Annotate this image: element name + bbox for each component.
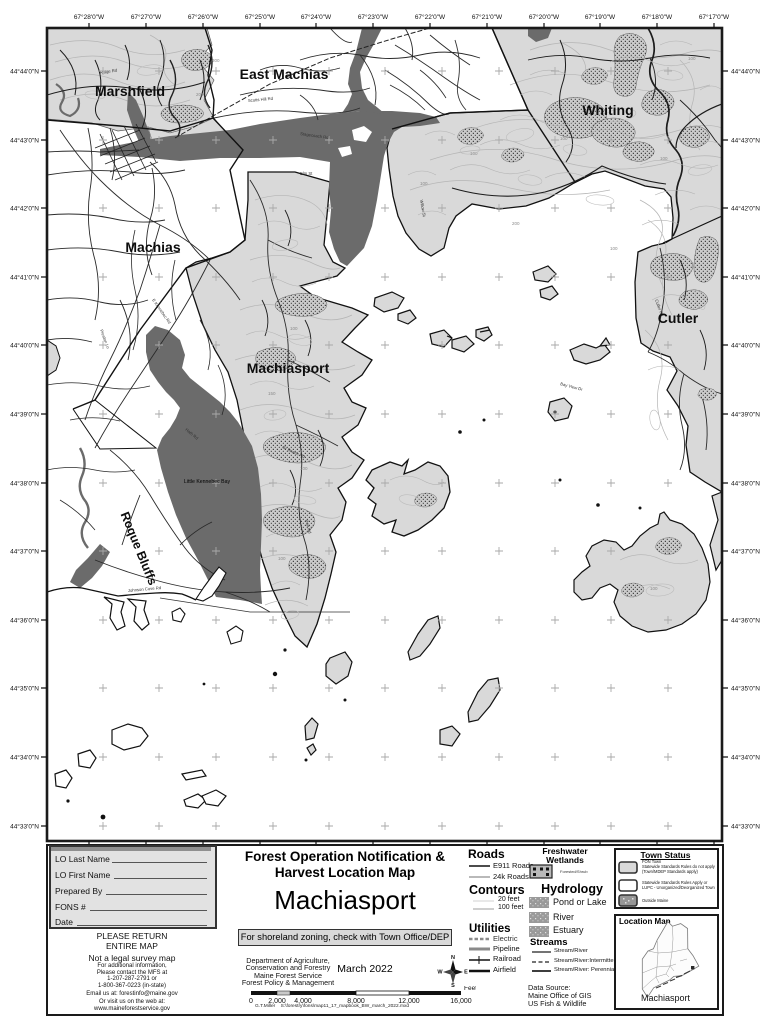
svg-text:44°39'0"N: 44°39'0"N	[731, 411, 760, 419]
svg-text:100: 100	[660, 156, 668, 161]
svg-text:44°40'0"N: 44°40'0"N	[731, 342, 760, 350]
svg-text:67°21'0"W: 67°21'0"W	[472, 13, 503, 21]
svg-text:44°37'0"N: 44°37'0"N	[10, 548, 39, 556]
svg-text:67°24'0"W: 67°24'0"W	[301, 13, 332, 21]
svg-text:Machiasport: Machiasport	[247, 360, 330, 376]
svg-text:44°39'0"N: 44°39'0"N	[10, 411, 39, 419]
svg-text:100: 100	[688, 56, 696, 61]
svg-text:44°44'0"N: 44°44'0"N	[731, 68, 760, 76]
svg-text:44°34'0"N: 44°34'0"N	[731, 754, 760, 762]
svg-text:67°27'0"W: 67°27'0"W	[131, 13, 162, 21]
svg-text:200: 200	[512, 221, 520, 226]
svg-text:300: 300	[212, 58, 220, 63]
svg-text:44°36'0"N: 44°36'0"N	[10, 617, 39, 625]
svg-text:100: 100	[610, 246, 618, 251]
svg-text:44°42'0"N: 44°42'0"N	[10, 205, 39, 213]
svg-text:44°41'0"N: 44°41'0"N	[10, 274, 39, 282]
svg-text:44°44'0"N: 44°44'0"N	[10, 68, 39, 76]
svg-text:44°36'0"N: 44°36'0"N	[731, 617, 760, 625]
svg-text:100: 100	[650, 586, 658, 591]
svg-text:100: 100	[278, 556, 286, 561]
svg-text:67°18'0"W: 67°18'0"W	[642, 13, 673, 21]
svg-text:67°22'0"W: 67°22'0"W	[415, 13, 446, 21]
svg-text:44°43'0"N: 44°43'0"N	[10, 137, 39, 145]
svg-text:67°23'0"W: 67°23'0"W	[358, 13, 389, 21]
svg-text:44°38'0"N: 44°38'0"N	[731, 480, 760, 488]
svg-text:100: 100	[420, 181, 428, 186]
svg-text:Little Kennebec Bay: Little Kennebec Bay	[184, 479, 231, 485]
svg-text:44°35'0"N: 44°35'0"N	[10, 685, 39, 693]
svg-text:44°37'0"N: 44°37'0"N	[731, 548, 760, 556]
svg-text:Elm St: Elm St	[300, 171, 313, 176]
svg-text:Machias: Machias	[125, 239, 180, 255]
svg-text:67°17'0"W: 67°17'0"W	[699, 13, 730, 21]
svg-text:100: 100	[300, 466, 308, 471]
svg-text:44°42'0"N: 44°42'0"N	[731, 205, 760, 213]
svg-text:44°41'0"N: 44°41'0"N	[731, 274, 760, 282]
svg-text:44°34'0"N: 44°34'0"N	[10, 754, 39, 762]
svg-text:67°25'0"W: 67°25'0"W	[245, 13, 276, 21]
svg-text:Cutler: Cutler	[658, 310, 699, 326]
svg-text:Whiting: Whiting	[582, 102, 633, 118]
svg-text:0: 0	[249, 998, 253, 1005]
svg-text:W: W	[437, 970, 443, 976]
svg-text:44°33'0"N: 44°33'0"N	[10, 823, 39, 831]
svg-text:East Machias: East Machias	[240, 66, 329, 82]
svg-text:150: 150	[268, 391, 276, 396]
svg-text:100: 100	[560, 136, 568, 141]
svg-text:Feet: Feet	[464, 986, 476, 992]
svg-text:44°43'0"N: 44°43'0"N	[731, 137, 760, 145]
svg-text:67°28'0"W: 67°28'0"W	[74, 13, 105, 21]
svg-text:67°26'0"W: 67°26'0"W	[188, 13, 219, 21]
svg-text:44°35'0"N: 44°35'0"N	[731, 685, 760, 693]
svg-text:100: 100	[290, 326, 298, 331]
svg-text:44°40'0"N: 44°40'0"N	[10, 342, 39, 350]
svg-text:67°19'0"W: 67°19'0"W	[585, 13, 616, 21]
svg-text:200: 200	[196, 92, 204, 97]
svg-text:67°20'0"W: 67°20'0"W	[529, 13, 560, 21]
svg-text:44°33'0"N: 44°33'0"N	[731, 823, 760, 831]
svg-text:Marshfield: Marshfield	[95, 83, 165, 99]
svg-text:44°38'0"N: 44°38'0"N	[10, 480, 39, 488]
